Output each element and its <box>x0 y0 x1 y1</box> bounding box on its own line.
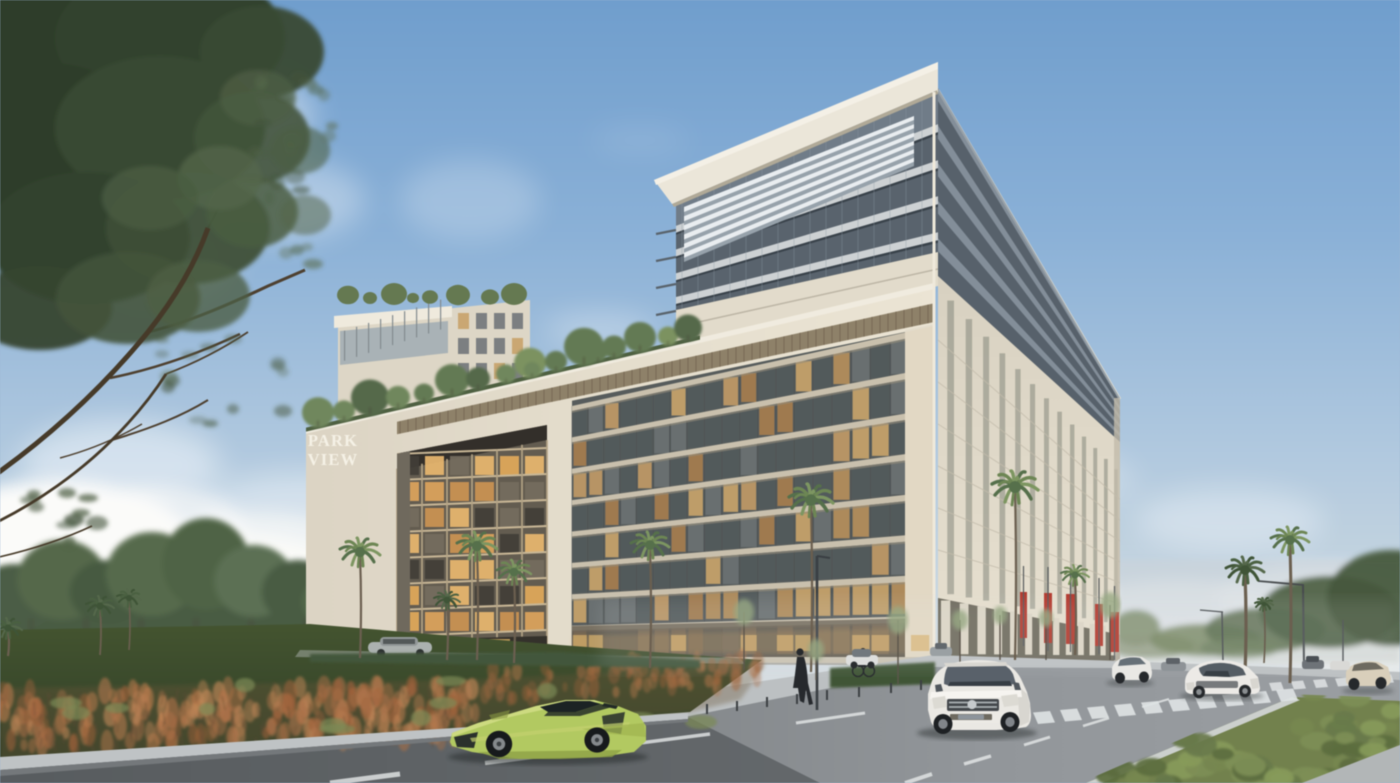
svg-text:PARK: PARK <box>308 431 358 450</box>
svg-text:VIEW: VIEW <box>308 450 359 469</box>
